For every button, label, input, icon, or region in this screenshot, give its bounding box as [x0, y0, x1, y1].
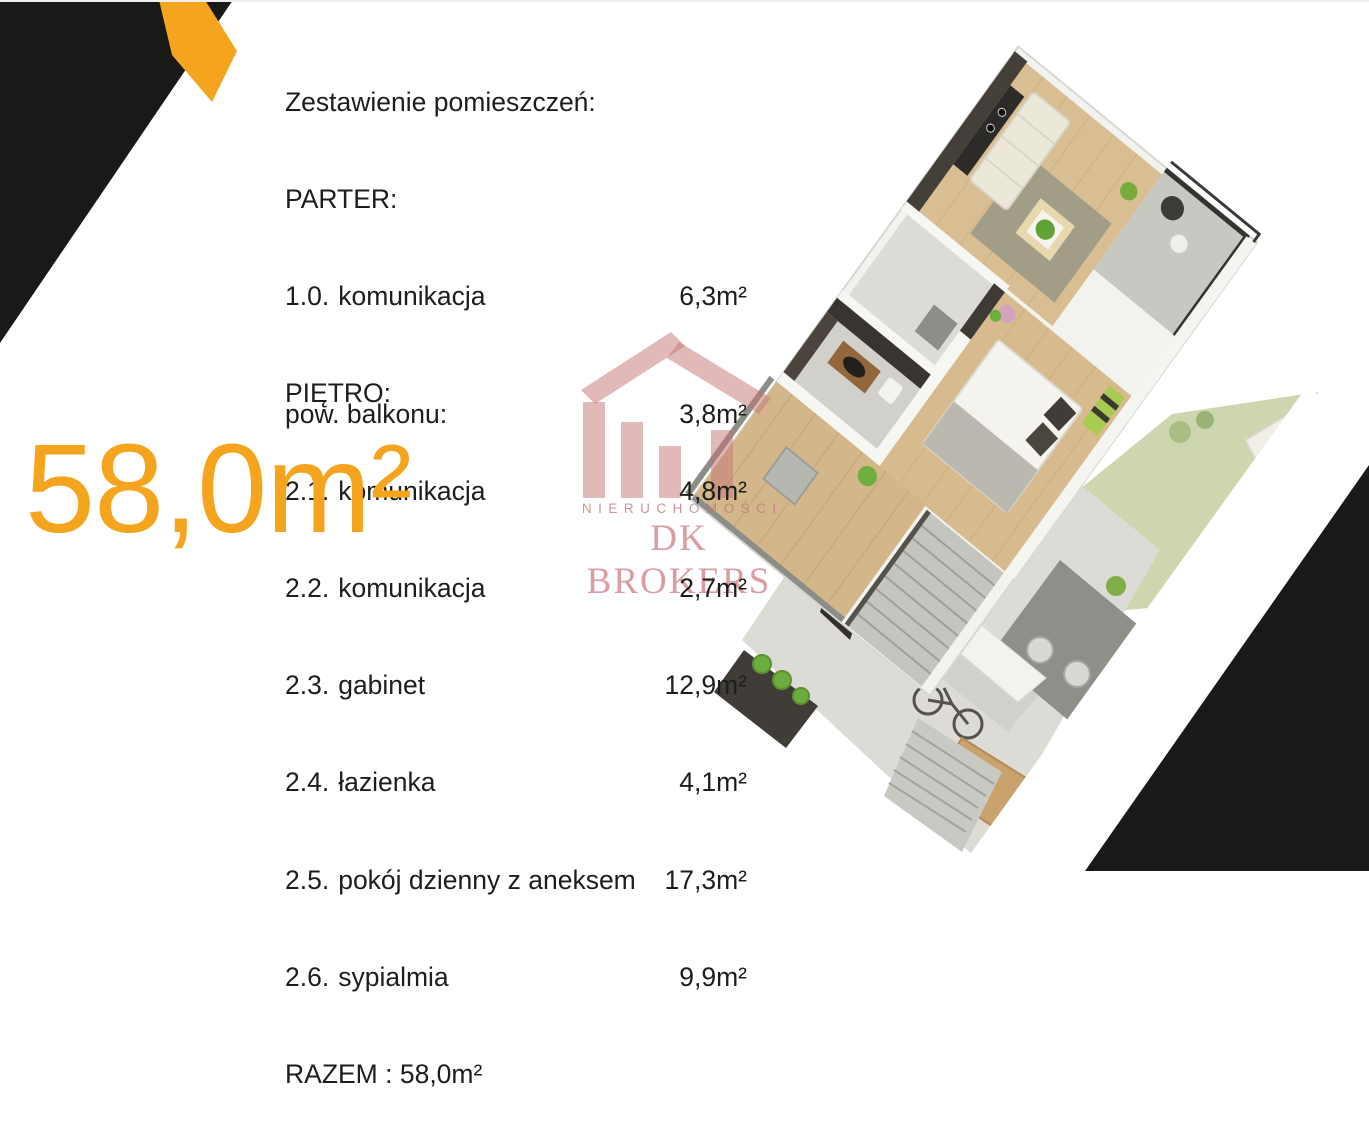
section-label-text: PARTER:	[285, 183, 397, 215]
room-row: 2.4. łazienka 4,1m²	[285, 766, 747, 798]
room-area: 2,7m²	[679, 572, 747, 604]
room-area: 4,1m²	[679, 766, 747, 798]
room-row: 2.6. sypialmia 9,9m²	[285, 961, 747, 993]
room-row: 2.2. komunikacja 2,7m²	[285, 572, 747, 604]
balcony-area: 3,8m²	[679, 398, 747, 430]
total-area-highlight: 58,0m²	[25, 426, 411, 552]
room-list: Zestawienie pomieszczeń: PARTER: 1.0. ko…	[285, 21, 747, 1123]
room-area: 17,3m²	[665, 864, 747, 896]
section-label-parter: PARTER:	[285, 183, 747, 215]
room-name: gabinet	[338, 669, 425, 701]
room-area: 9,9m²	[679, 961, 747, 993]
room-name: sypialmia	[338, 961, 448, 993]
room-name: komunikacja	[338, 572, 485, 604]
room-number: 2.2.	[285, 572, 329, 604]
room-list-title-text: Zestawienie pomieszczeń:	[285, 86, 596, 118]
room-area: 12,9m²	[665, 669, 747, 701]
room-number: 2.3.	[285, 669, 329, 701]
room-number: 1.0.	[285, 280, 329, 312]
room-name: łazienka	[338, 766, 435, 798]
room-name: komunikacja	[338, 280, 485, 312]
room-number: 2.6.	[285, 961, 329, 993]
top-edge-line	[0, 0, 1369, 2]
total-text: RAZEM : 58,0m²	[285, 1058, 482, 1090]
room-row: 1.0. komunikacja 6,3m²	[285, 280, 747, 312]
room-number: 2.4.	[285, 766, 329, 798]
room-area: 6,3m²	[679, 280, 747, 312]
room-list-total: RAZEM : 58,0m²	[285, 1058, 747, 1090]
room-row: 2.5. pokój dzienny z aneksem 17,3m²	[285, 864, 747, 896]
room-number: 2.5.	[285, 864, 329, 896]
room-row: 2.3. gabinet 12,9m²	[285, 669, 747, 701]
room-list-title: Zestawienie pomieszczeń:	[285, 86, 747, 118]
room-name: pokój dzienny z aneksem	[338, 864, 636, 896]
room-area: 4,8m²	[679, 475, 747, 507]
